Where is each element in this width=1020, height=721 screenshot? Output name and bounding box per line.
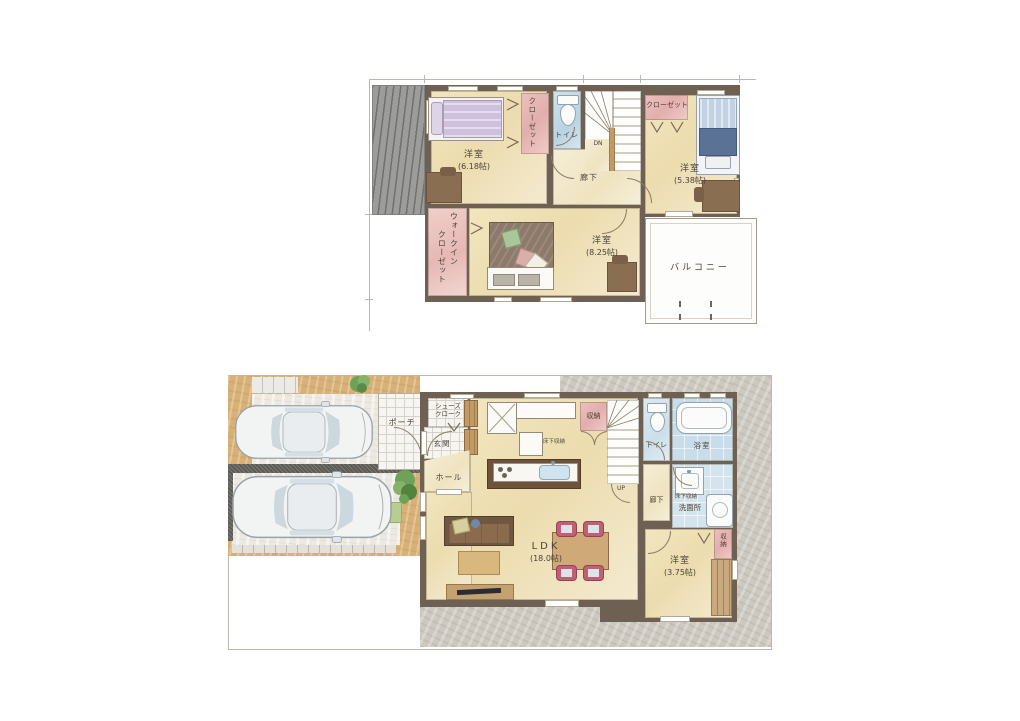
shelf-drawer bbox=[493, 274, 515, 286]
cushion bbox=[471, 519, 480, 528]
dim-line-top bbox=[370, 79, 756, 80]
room-stairs-2f bbox=[585, 91, 641, 171]
label-underfloor-kitchen: 床下収納 bbox=[543, 439, 569, 446]
room-label-storage-bedroom: 収納 bbox=[718, 533, 726, 548]
stove-burner bbox=[498, 467, 503, 472]
kitchen-counter-back bbox=[516, 402, 576, 419]
window bbox=[660, 616, 690, 622]
entry-step-arc bbox=[394, 427, 423, 464]
room-label-washroom: 洗面所 bbox=[671, 503, 709, 513]
stove-burner bbox=[507, 467, 512, 472]
chair-seat bbox=[588, 525, 599, 533]
stairs-2f-post bbox=[609, 128, 615, 171]
hanger-icon bbox=[505, 97, 520, 112]
room-label-hallway-1f: 廊下 bbox=[643, 496, 670, 505]
shelf-drawer bbox=[518, 274, 540, 286]
pantry-x bbox=[488, 403, 516, 433]
washer-drum bbox=[712, 502, 728, 518]
stove-burner bbox=[502, 473, 507, 478]
room-size: (18.0帖) bbox=[530, 554, 562, 563]
window bbox=[732, 560, 738, 580]
balcony: バルコニー bbox=[645, 218, 757, 324]
hanger-icon bbox=[669, 120, 685, 134]
room-label-closet-right: クローゼット bbox=[642, 101, 692, 110]
bed-blanket bbox=[699, 128, 737, 156]
chair-seat bbox=[561, 569, 572, 577]
room-label-shoes-cloak: シューズ クローク bbox=[426, 403, 470, 419]
stairs-1f-treads bbox=[607, 400, 639, 484]
pad-tile-edge bbox=[232, 545, 396, 553]
room-label-bedroom-375: 洋室 (3.75帖) bbox=[642, 556, 718, 579]
window bbox=[540, 297, 572, 302]
opening-hall-ldk bbox=[436, 489, 462, 495]
roof-hatch bbox=[372, 85, 425, 215]
room-size: (3.75帖) bbox=[664, 568, 696, 577]
car bbox=[234, 397, 374, 467]
dim-tick bbox=[583, 75, 584, 83]
car bbox=[231, 470, 393, 544]
dining-chair bbox=[583, 521, 604, 537]
bush-icon bbox=[348, 372, 372, 396]
underfloor-storage-box bbox=[519, 432, 543, 456]
balcony-door-opening bbox=[665, 211, 693, 217]
room-label-ldk: LDK (18.0帖) bbox=[508, 540, 584, 565]
window bbox=[494, 297, 512, 302]
tv-board bbox=[446, 584, 514, 600]
chair-seat bbox=[561, 525, 572, 533]
porch bbox=[378, 393, 425, 470]
window bbox=[420, 516, 426, 540]
walkway-tiles bbox=[252, 377, 298, 393]
room-size: (5.38帖) bbox=[674, 176, 706, 185]
dim-tick bbox=[739, 75, 740, 83]
sofa bbox=[444, 516, 514, 546]
floorplan-canvas: バルコニー bbox=[0, 0, 1020, 721]
window bbox=[545, 600, 579, 607]
room-name: 洋室 bbox=[464, 150, 484, 160]
window bbox=[710, 393, 726, 398]
room-label-porch: ポーチ bbox=[381, 418, 423, 428]
washing-machine bbox=[706, 494, 733, 527]
kitchen-sink bbox=[539, 465, 570, 480]
entry-door-opening bbox=[421, 431, 427, 455]
window bbox=[420, 492, 426, 512]
room-label-bedroom-618: 洋室 (6.18帖) bbox=[438, 150, 510, 173]
stairs-dn-label: DN bbox=[589, 140, 607, 148]
window bbox=[556, 86, 578, 91]
hanger-icon bbox=[649, 120, 665, 134]
dim-tick bbox=[424, 75, 425, 83]
window bbox=[648, 393, 662, 398]
room-label-hall: ホール bbox=[432, 473, 466, 483]
room-name: 洋室 bbox=[592, 236, 612, 246]
tv bbox=[457, 588, 501, 595]
room-name: LDK bbox=[532, 541, 561, 552]
room-label-wic-line1: ウォークイン bbox=[448, 212, 458, 266]
kitchen-island bbox=[487, 459, 581, 489]
dining-chair bbox=[583, 565, 604, 581]
room-label-closet-left: クローゼット bbox=[527, 97, 537, 148]
bathtub bbox=[676, 402, 732, 434]
balcony-dash bbox=[679, 301, 681, 320]
room-label-hallway-2f: 廊下 bbox=[576, 173, 602, 183]
window bbox=[497, 86, 523, 91]
bathtub-inner bbox=[681, 407, 727, 429]
window bbox=[524, 393, 560, 398]
balcony-dash bbox=[710, 301, 712, 320]
room-label-wic-line2: クローゼット bbox=[436, 230, 446, 284]
room-stairs-1f bbox=[607, 400, 639, 484]
room-label-bath: 浴室 bbox=[684, 441, 720, 451]
hanger-icon bbox=[505, 135, 520, 150]
pantry-shelf bbox=[487, 402, 517, 434]
room-name: 洋室 bbox=[670, 556, 690, 566]
room-label-toilet-2f: トイレ bbox=[552, 131, 582, 140]
label-line: クローク bbox=[435, 410, 461, 418]
dining-chair bbox=[556, 521, 577, 537]
room-label-bedroom-825: 洋室 (8.25帖) bbox=[562, 236, 642, 259]
bed-mattress bbox=[443, 100, 502, 138]
window bbox=[448, 86, 478, 91]
dim-line-left bbox=[369, 79, 370, 331]
window bbox=[450, 394, 474, 399]
balcony-label: バルコニー bbox=[664, 263, 736, 275]
dining-chair bbox=[556, 565, 577, 581]
dim-tick bbox=[640, 75, 641, 83]
chair-seat bbox=[588, 569, 599, 577]
room-label-storage-stairs: 収納 bbox=[580, 412, 607, 421]
desk bbox=[607, 262, 637, 292]
room-label-genkan: 玄関 bbox=[428, 439, 456, 449]
room-hallway-1f bbox=[643, 464, 670, 521]
faucet bbox=[551, 461, 555, 465]
desk-chair bbox=[694, 187, 704, 202]
room-name: 洋室 bbox=[680, 164, 700, 174]
room-label-bedroom-538: 洋室 (5.38帖) bbox=[650, 164, 730, 187]
window bbox=[684, 393, 700, 398]
label-underfloor-washroom: 床下収納 bbox=[673, 494, 699, 501]
hanger-icon bbox=[696, 531, 712, 545]
hanger-icon bbox=[469, 221, 484, 236]
dim-tick bbox=[365, 299, 373, 300]
room-size: (6.18帖) bbox=[458, 162, 490, 171]
room-size: (8.25帖) bbox=[586, 248, 618, 257]
bed-pillow bbox=[431, 102, 443, 135]
label-line: シューズ bbox=[435, 402, 461, 410]
living-table bbox=[458, 551, 500, 575]
desk bbox=[426, 172, 462, 203]
bush-icon bbox=[392, 468, 418, 506]
